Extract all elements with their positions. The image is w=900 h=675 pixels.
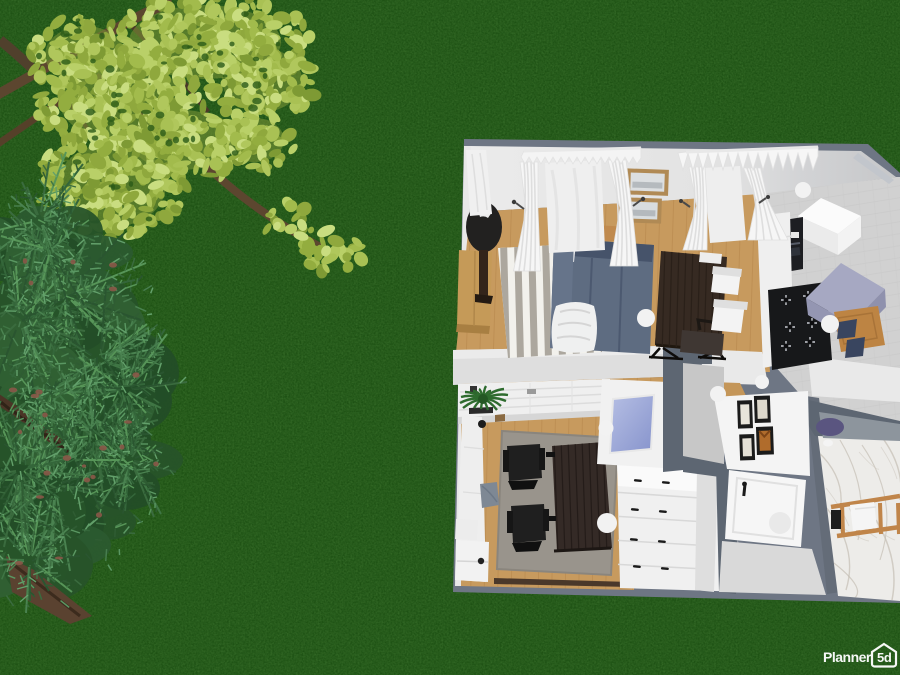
svg-text:5d: 5d [877,650,892,665]
svg-text:Planner: Planner [823,649,872,665]
